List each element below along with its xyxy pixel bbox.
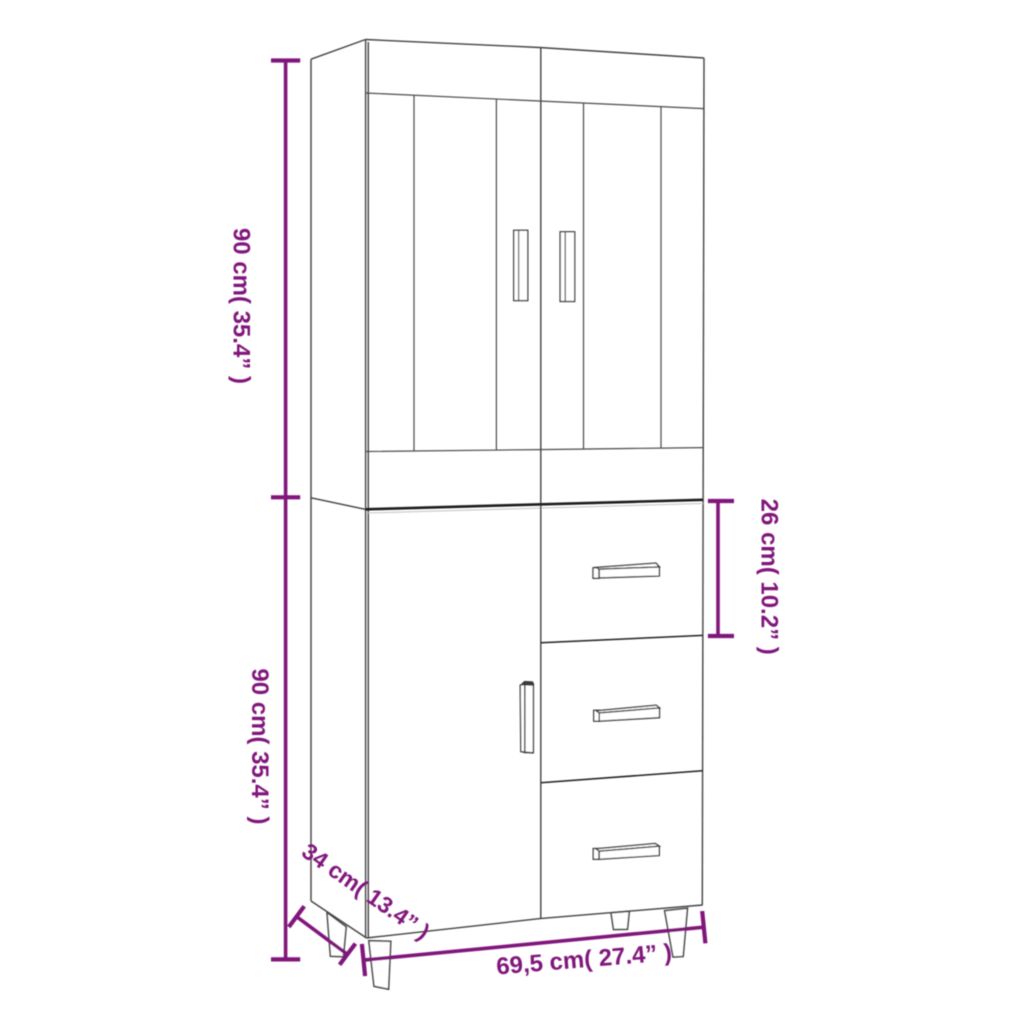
svg-text:90 cm( 35.4” ): 90 cm( 35.4” ) <box>246 668 273 824</box>
svg-text:26 cm( 10.2” ): 26 cm( 10.2” ) <box>756 499 783 655</box>
svg-text:90 cm( 35.4” ): 90 cm( 35.4” ) <box>228 228 255 384</box>
